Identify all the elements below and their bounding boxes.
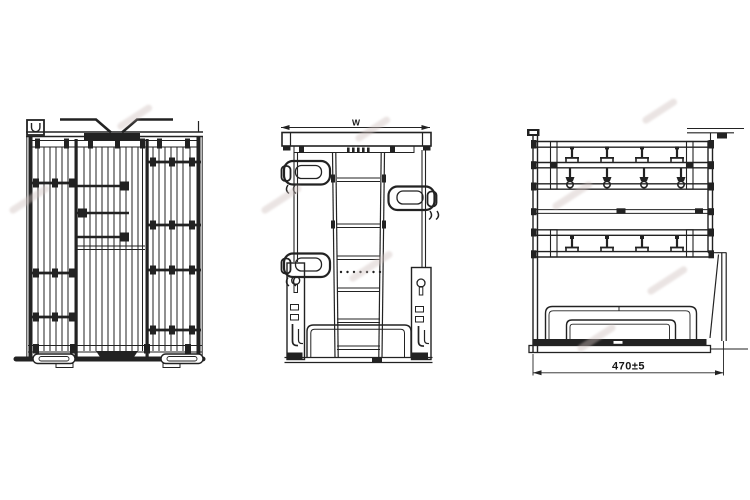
front-top-rail [26, 132, 203, 149]
rear-bottom-tray [529, 307, 748, 353]
rear-view-drawing: 470±5 [527, 129, 748, 376]
side-central-column [331, 153, 386, 358]
watermark-smudge [348, 250, 394, 283]
rear-hook-row-1 [565, 146, 684, 162]
side-top-plate [282, 133, 431, 153]
front-view-drawing [16, 120, 203, 368]
rear-wall-bracket [687, 129, 744, 142]
side-bottom-rail [285, 325, 433, 363]
watermark-smudge [260, 184, 302, 215]
side-mount-plate-right [412, 268, 432, 360]
rear-slant-panel [708, 253, 727, 341]
rear-view-dimension-label: 470±5 [612, 361, 645, 373]
watermark-smudge [116, 103, 153, 131]
side-basket-lower-left [282, 254, 331, 287]
base-width-dimension: 470±5 [533, 341, 724, 376]
watermark-smudge [646, 265, 688, 296]
rear-shelf-rails [531, 140, 714, 258]
watermark-smudge [576, 323, 617, 353]
front-vertical-bars [38, 147, 190, 351]
technical-drawing-page: W [0, 0, 750, 500]
side-basket-top-left [282, 161, 331, 194]
top-width-dimension: W [281, 118, 430, 131]
front-rungs [29, 158, 201, 335]
side-view-width-label: W [352, 118, 361, 128]
technical-drawing-canvas: W [0, 0, 750, 500]
front-top-handles [60, 120, 173, 133]
front-base [16, 351, 203, 368]
side-basket-right [389, 187, 439, 220]
side-view-drawing: W [281, 118, 439, 363]
rear-hook-row-3 [565, 236, 684, 252]
watermark-smudge [641, 97, 678, 125]
